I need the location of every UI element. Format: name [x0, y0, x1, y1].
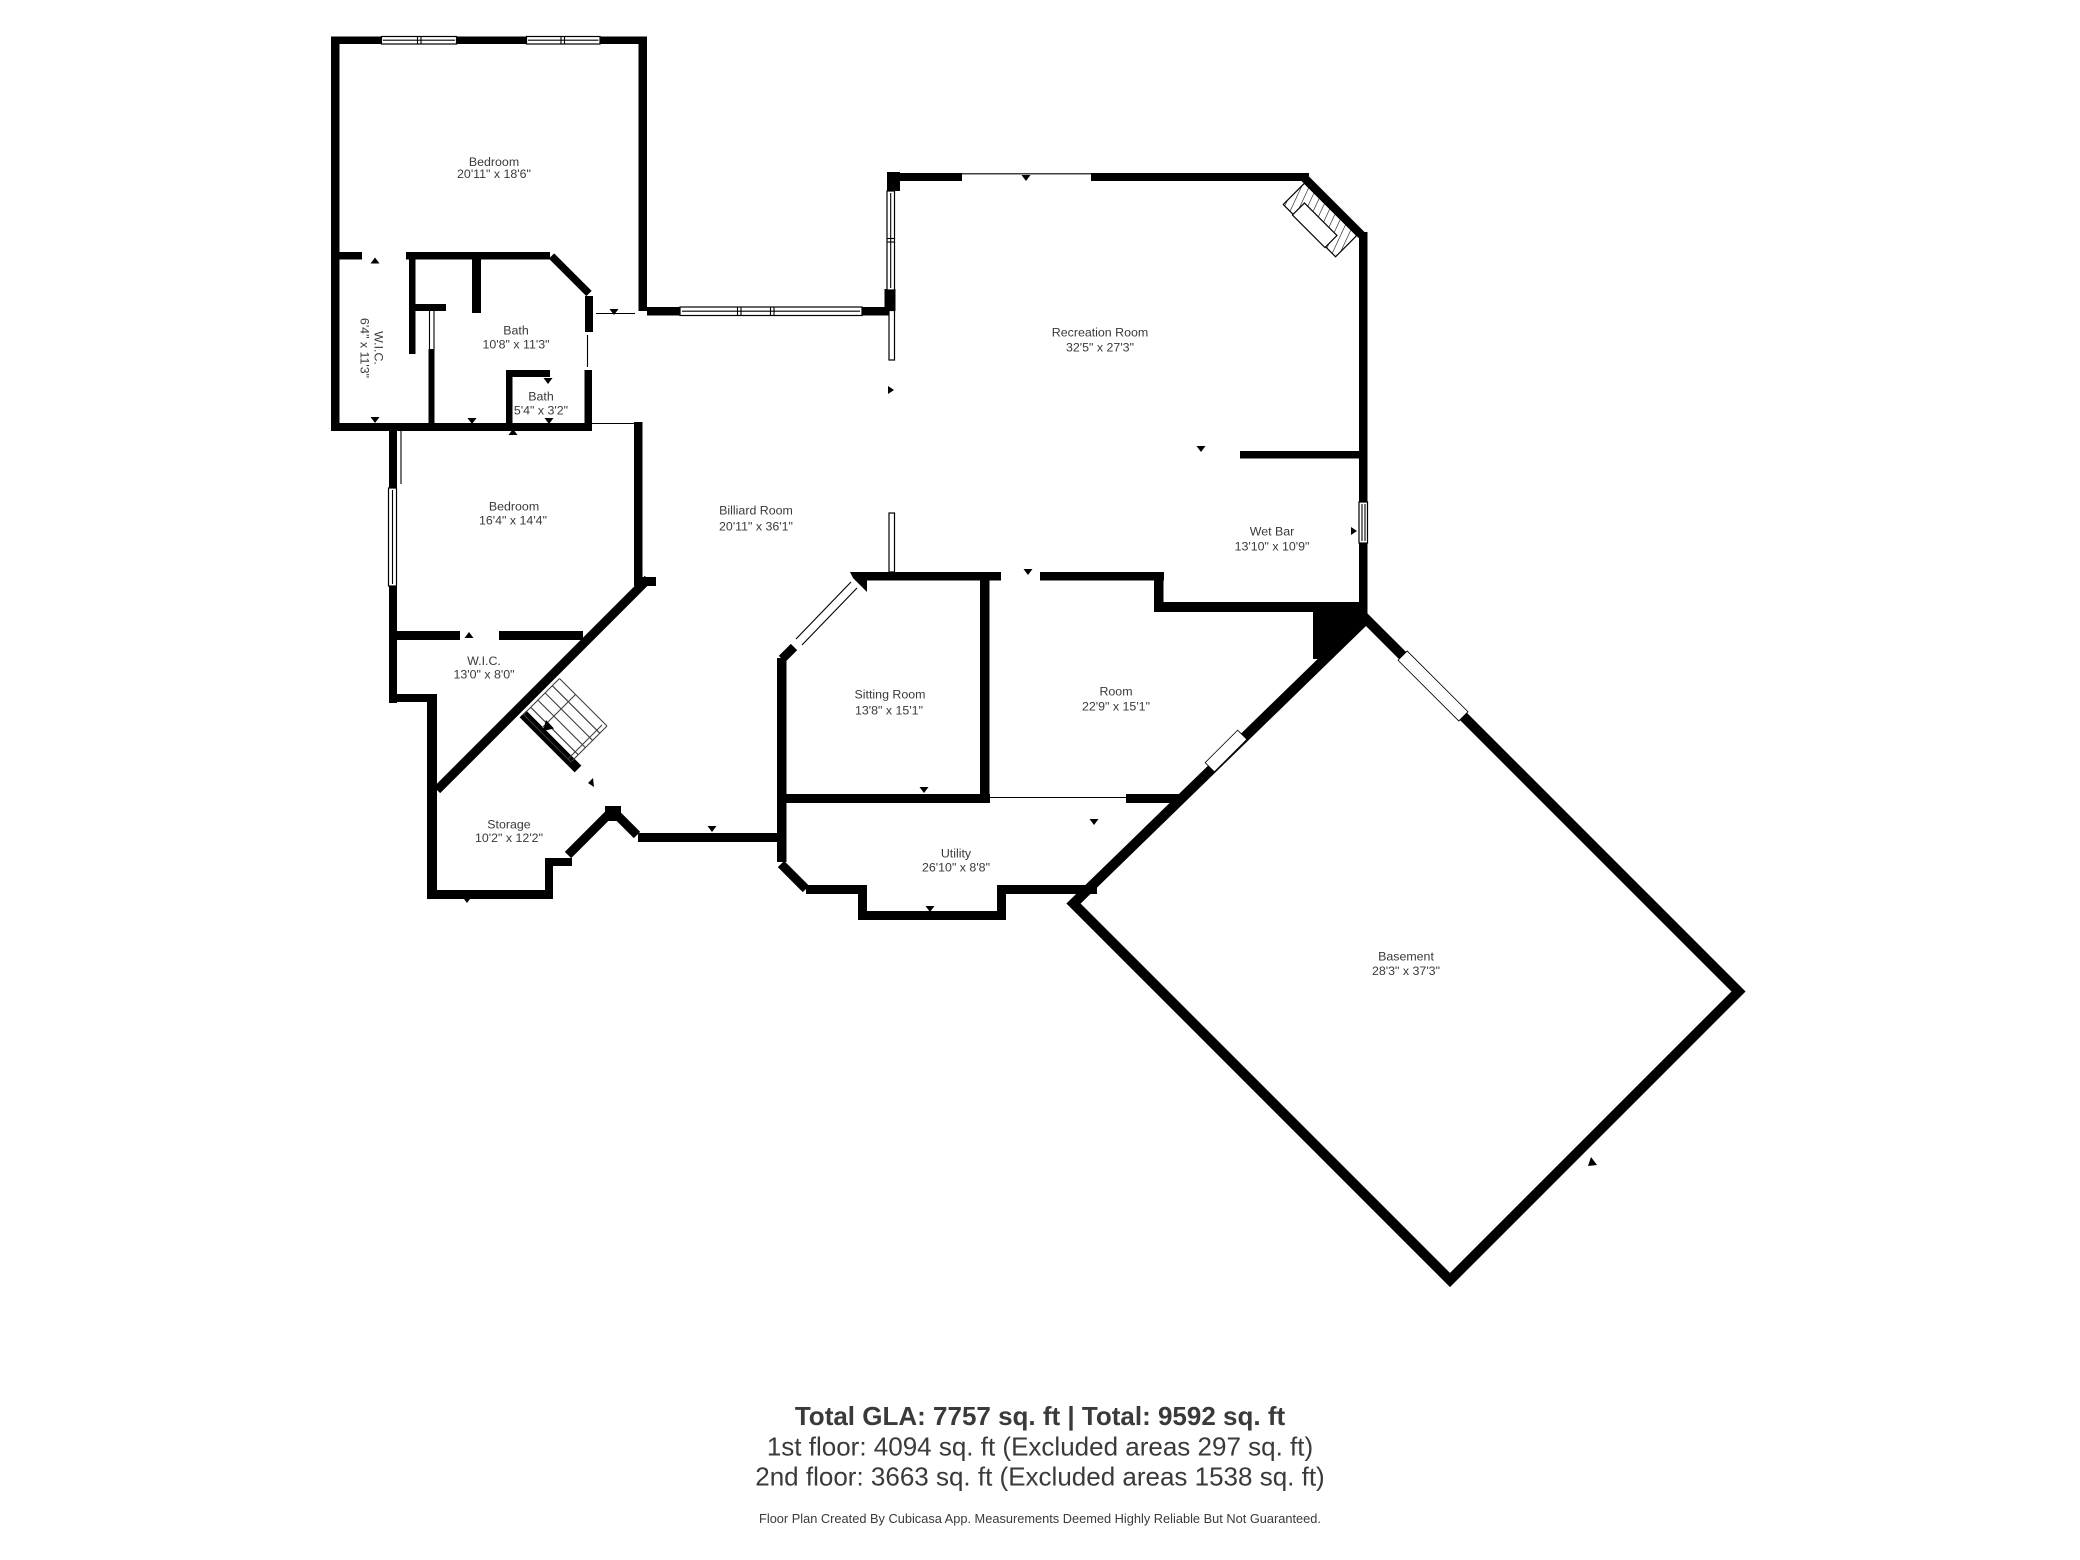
svg-text:Floor Plan Created By Cubicasa: Floor Plan Created By Cubicasa App. Meas… [759, 1511, 1321, 1526]
svg-text:Billiard Room: Billiard Room [719, 503, 793, 517]
svg-text:Total GLA: 7757 sq. ft | Total: Total GLA: 7757 sq. ft | Total: 9592 sq.… [795, 1401, 1286, 1431]
svg-text:5'4" x 3'2": 5'4" x 3'2" [514, 403, 568, 417]
svg-text:W.I.C.: W.I.C. [467, 654, 501, 668]
svg-text:6'4" x 11'3": 6'4" x 11'3" [358, 318, 372, 378]
svg-text:Recreation Room: Recreation Room [1052, 325, 1148, 339]
svg-text:26'10" x 8'8": 26'10" x 8'8" [922, 860, 990, 874]
svg-text:10'8" x 11'3": 10'8" x 11'3" [482, 337, 549, 351]
svg-text:Storage: Storage [487, 817, 531, 831]
svg-text:32'5" x 27'3": 32'5" x 27'3" [1066, 340, 1134, 354]
svg-text:20'11" x 18'6": 20'11" x 18'6" [457, 167, 531, 181]
svg-text:13'8" x 15'1": 13'8" x 15'1" [855, 703, 923, 717]
svg-text:2nd floor: 3663 sq. ft (Exclud: 2nd floor: 3663 sq. ft (Excluded areas 1… [755, 1462, 1324, 1492]
svg-text:Wet Bar: Wet Bar [1250, 524, 1295, 538]
svg-text:Bath: Bath [528, 389, 554, 403]
svg-text:20'11" x 36'1": 20'11" x 36'1" [719, 519, 793, 533]
svg-text:Bedroom: Bedroom [489, 499, 539, 513]
svg-text:10'2" x 12'2": 10'2" x 12'2" [475, 831, 543, 845]
svg-text:13'0" x 8'0": 13'0" x 8'0" [453, 667, 514, 681]
svg-text:16'4" x 14'4": 16'4" x 14'4" [479, 513, 547, 527]
svg-text:W.I.C.: W.I.C. [372, 331, 386, 365]
svg-text:Bath: Bath [503, 323, 529, 337]
svg-text:13'10" x 10'9": 13'10" x 10'9" [1235, 539, 1310, 553]
svg-text:Basement: Basement [1378, 949, 1434, 963]
svg-text:22'9" x 15'1": 22'9" x 15'1" [1082, 699, 1150, 713]
svg-text:28'3" x 37'3": 28'3" x 37'3" [1372, 964, 1440, 978]
svg-text:1st floor: 4094 sq. ft (Exclud: 1st floor: 4094 sq. ft (Excluded areas 2… [767, 1432, 1313, 1462]
svg-text:Room: Room [1099, 684, 1132, 698]
svg-text:Sitting Room: Sitting Room [855, 687, 926, 701]
svg-text:Utility: Utility [941, 846, 972, 860]
